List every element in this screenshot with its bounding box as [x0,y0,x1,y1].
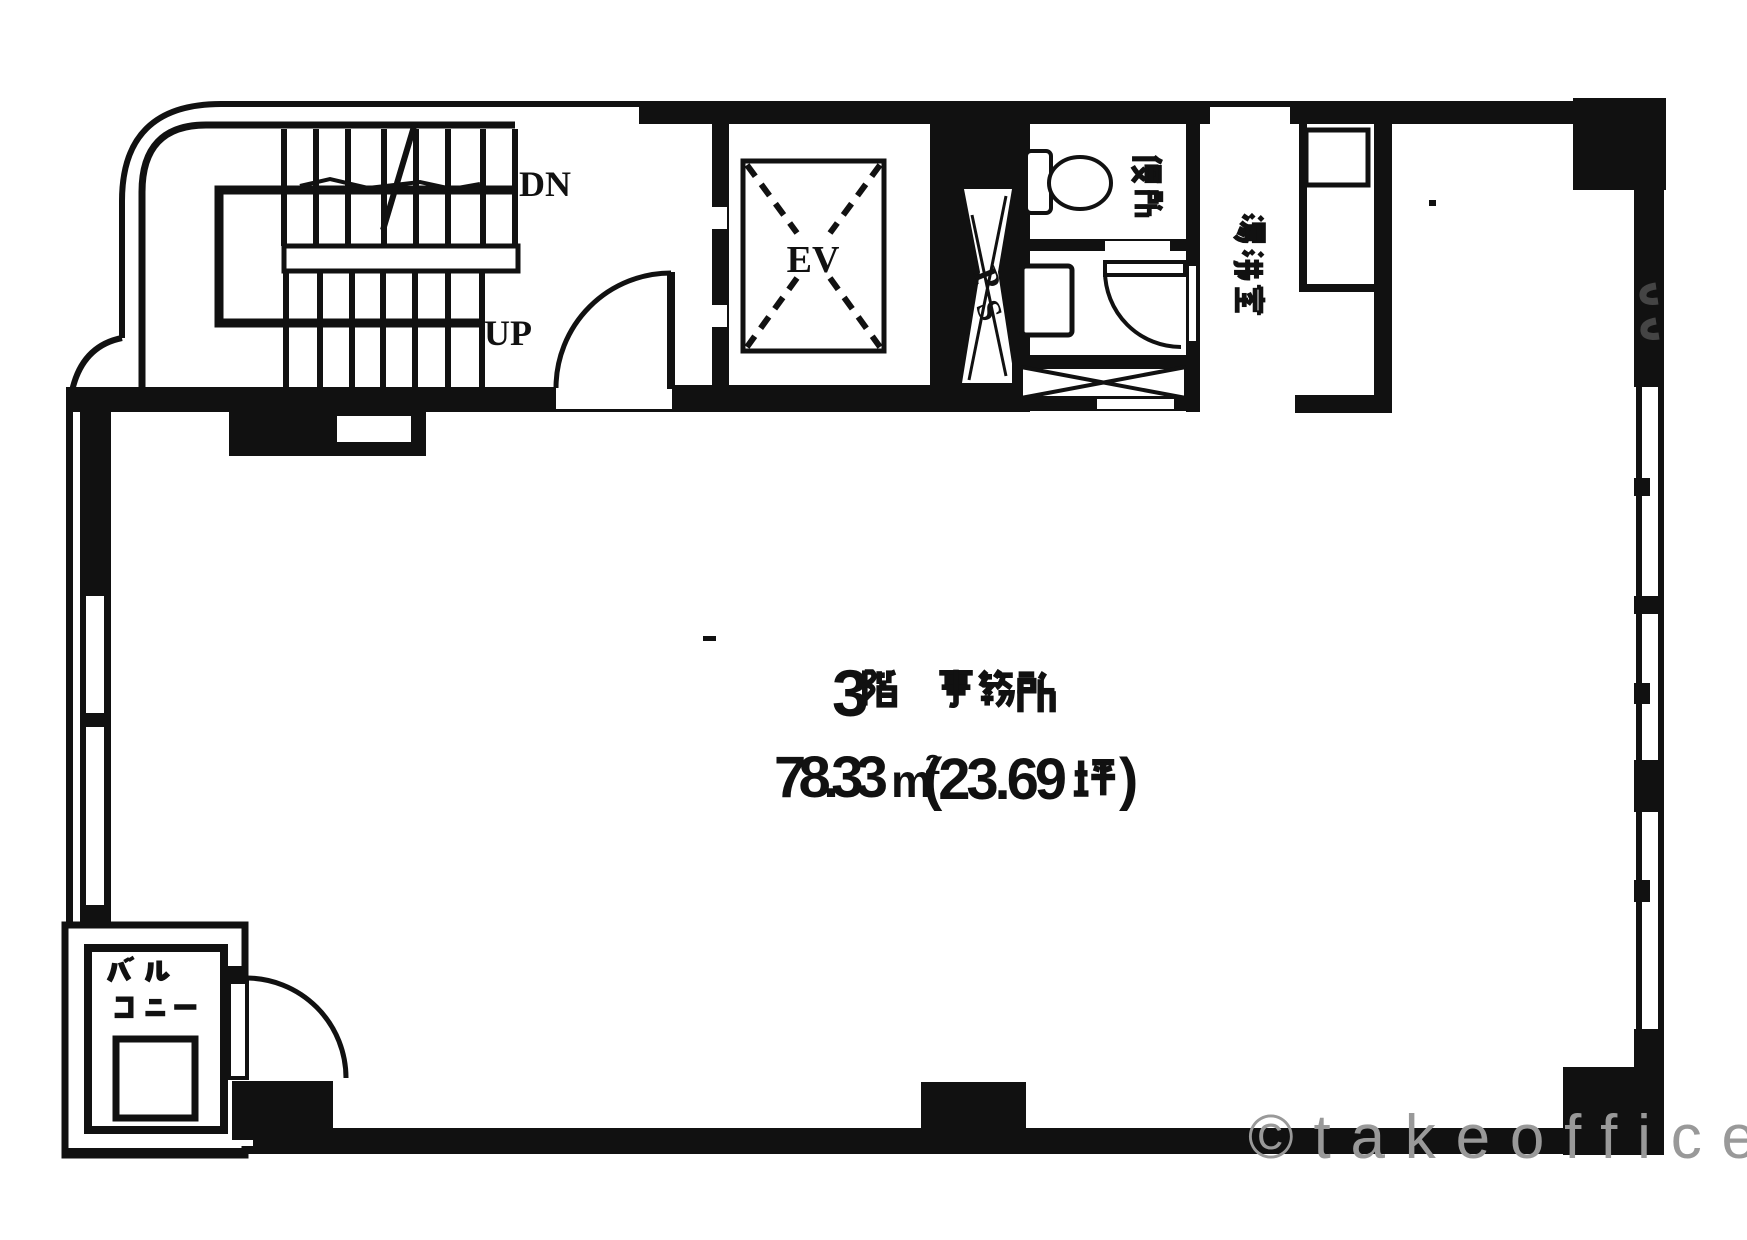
svg-text:EV: EV [787,239,840,281]
svg-text:(23.69: (23.69 [923,747,1067,812]
svg-text:UP: UP [484,313,532,353]
svg-text:): ) [1119,747,1138,812]
svg-text:DN: DN [519,164,571,204]
svg-text:78.33: 78.33 [774,745,888,810]
